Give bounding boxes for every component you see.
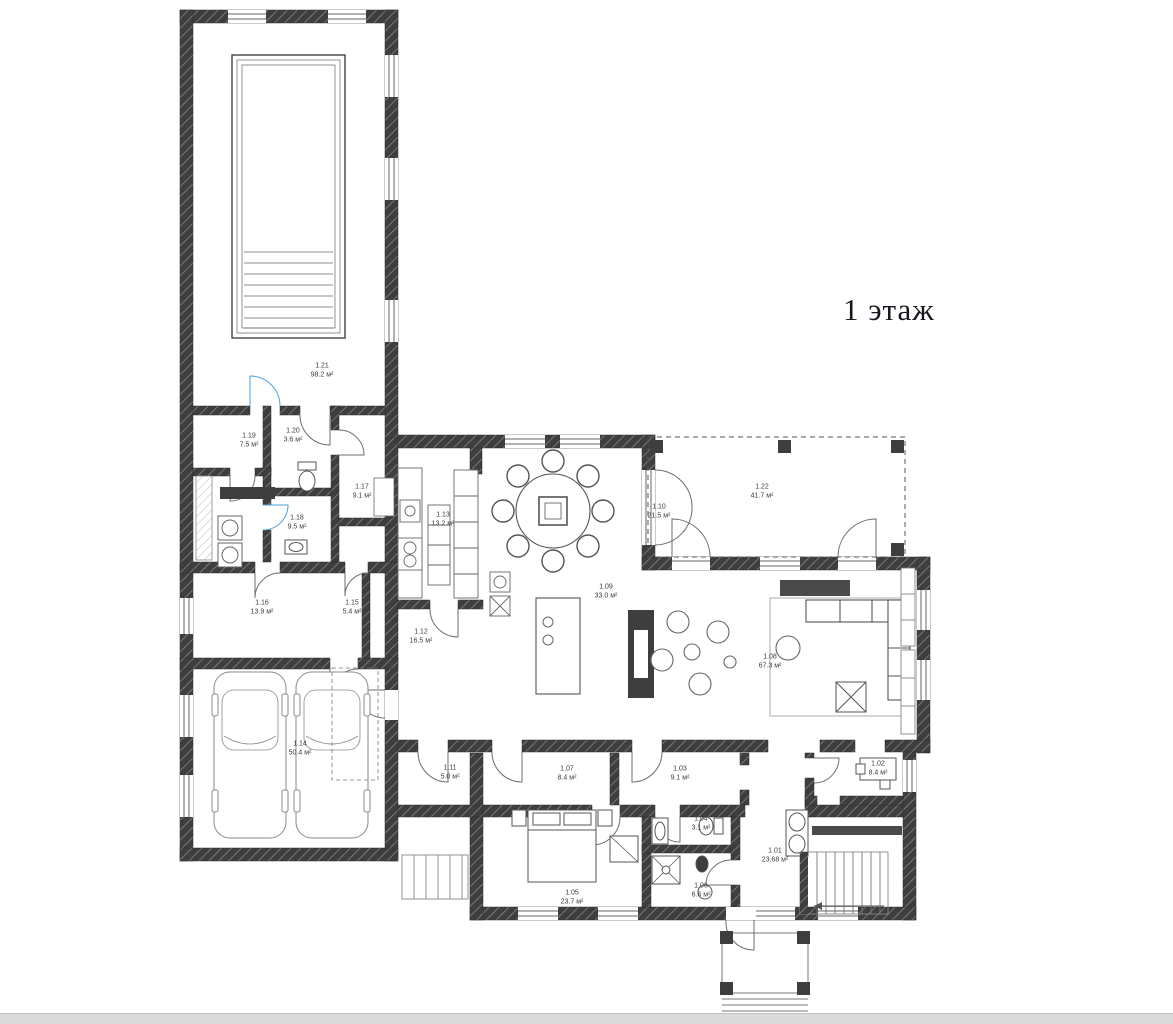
room-label-1-02: 1.028.4 м² — [869, 761, 888, 778]
window — [760, 557, 800, 570]
window — [917, 590, 930, 630]
room-label-1-01: 1.0123.68 м² — [762, 848, 789, 865]
wall-segment — [263, 468, 271, 505]
room-area: 9.1 м² — [353, 492, 372, 501]
porch-column — [797, 982, 810, 995]
room-area: 67.3 м² — [759, 662, 782, 671]
room-area: 3.6 м² — [284, 436, 303, 445]
room-number: 1.15 — [343, 600, 362, 609]
wall-segment — [470, 753, 483, 920]
room-area: 33.0 м² — [595, 592, 618, 601]
window — [598, 907, 638, 920]
room-label-1-03: 1.039.1 м² — [671, 766, 690, 783]
living-room-fixtures — [770, 568, 915, 734]
footer-strip — [0, 1013, 1173, 1024]
wall-segment — [522, 740, 632, 752]
wall-segment — [840, 796, 903, 805]
shower — [652, 856, 680, 884]
door-arc — [339, 430, 364, 455]
door-arc — [814, 758, 839, 783]
wall-segment — [731, 885, 740, 907]
room-label-1-13: 1.1313.2 м² — [432, 512, 455, 529]
door-gap — [726, 907, 756, 920]
hall-fixtures — [536, 598, 736, 698]
wall-segment — [662, 740, 768, 752]
stairs — [800, 852, 888, 914]
room-number: 1.03 — [671, 766, 690, 775]
room-number: 1.05 — [561, 890, 584, 899]
counter — [220, 487, 275, 499]
wall-segment — [263, 530, 271, 562]
wall-segment — [805, 805, 903, 817]
room-number: 1.14 — [289, 741, 312, 750]
room-area: 8.4 м² — [558, 774, 577, 783]
window — [228, 10, 266, 23]
room-label-1-04: 1.043.1 м² — [692, 816, 711, 833]
room-number: 1.19 — [240, 433, 259, 442]
window — [180, 598, 193, 634]
window — [385, 300, 398, 342]
window — [385, 158, 398, 200]
room-label-1-20: 1.203.6 м² — [284, 428, 303, 445]
toilet-dark — [696, 856, 708, 872]
room-label-1-12: 1.1216.5 м² — [410, 629, 433, 646]
appliance — [490, 572, 510, 592]
dining-set — [492, 450, 614, 572]
washing-machine — [218, 543, 242, 567]
window — [328, 10, 366, 23]
room-area: 3.1 м² — [692, 824, 711, 833]
wall-segment — [610, 753, 619, 805]
porch-column — [720, 982, 733, 995]
wall-segment — [180, 658, 330, 669]
toilet — [298, 462, 316, 491]
wall-segment — [339, 518, 398, 526]
room-area: 98.2 м² — [311, 371, 334, 380]
room-area: 16.5 м² — [410, 637, 433, 646]
window — [903, 760, 916, 792]
wall-segment — [331, 455, 339, 562]
washing-machine — [218, 516, 242, 540]
room-area: 5.4 м² — [343, 608, 362, 617]
room-label-1-15: 1.155.4 м² — [343, 600, 362, 617]
window — [560, 435, 600, 448]
room-area: 13.2 м² — [432, 520, 455, 529]
room-number: 1.07 — [558, 766, 577, 775]
room-label-1-14: 1.1450.4 м² — [289, 741, 312, 758]
wall-segment — [917, 557, 930, 753]
room-area: 41.7 м² — [751, 492, 774, 501]
wall-segment — [358, 658, 398, 669]
door-arc — [672, 519, 710, 557]
media-box — [836, 682, 866, 712]
terrace — [648, 437, 905, 557]
wall-segment — [448, 740, 492, 752]
wall-segment — [180, 848, 398, 861]
wall-segment — [642, 817, 651, 907]
room-label-1-19: 1.197.5 м² — [240, 433, 259, 450]
door-arc — [263, 505, 288, 530]
hob — [398, 538, 422, 570]
terrace-column — [778, 440, 791, 453]
pool — [232, 55, 345, 338]
room-number: 1.06 — [692, 883, 711, 892]
sink — [285, 540, 307, 554]
room-number: 1.08 — [759, 654, 782, 663]
floor-plan-drawing — [0, 0, 1173, 1024]
wall-segment — [731, 817, 740, 860]
window — [818, 907, 858, 920]
porch-column — [797, 931, 810, 944]
shelving — [901, 568, 915, 734]
room-number: 1.12 — [410, 629, 433, 638]
wall-segment — [642, 845, 731, 853]
floor-title: 1 этаж — [843, 292, 935, 328]
wall-segment — [805, 753, 814, 758]
room-area: 13.9 м² — [251, 608, 274, 617]
room-number: 1.18 — [288, 515, 307, 524]
radiator-bench — [812, 826, 902, 835]
room-number: 1.11 — [441, 765, 460, 774]
wall-segment — [362, 573, 370, 658]
room-number: 1.09 — [595, 584, 618, 593]
room-label-1-17: 1.179.1 м² — [353, 484, 372, 501]
room-area: 21.5 м² — [648, 512, 671, 521]
entry-hall-fixtures — [786, 758, 902, 914]
window — [385, 55, 398, 97]
wall-segment — [368, 562, 398, 573]
room-area: 23.68 м² — [762, 856, 789, 865]
room-label-1-08: 1.0867.3 м² — [759, 654, 782, 671]
room-label-1-18: 1.189.5 м² — [288, 515, 307, 532]
room-label-1-11: 1.115.0 м² — [441, 765, 460, 782]
room-area: 9.1 м² — [671, 774, 690, 783]
sideboard — [780, 580, 850, 596]
room-area: 23.7 м² — [561, 898, 584, 907]
room-area: 6.6 м² — [692, 891, 711, 900]
room-area: 50.4 м² — [289, 749, 312, 758]
pillow — [564, 813, 591, 825]
glass-door — [672, 557, 710, 570]
wall-segment — [193, 468, 230, 476]
wall-segment — [280, 406, 300, 415]
terrace-column — [891, 543, 904, 556]
porch-column — [720, 931, 733, 944]
door-gap — [385, 690, 398, 720]
room-number: 1.20 — [284, 428, 303, 437]
wall-segment — [280, 562, 345, 573]
window — [505, 435, 545, 448]
kitchen-counter — [398, 468, 422, 598]
nightstand — [598, 810, 612, 826]
room-number: 1.16 — [251, 600, 274, 609]
door-arc — [300, 415, 330, 445]
door-arc — [255, 573, 280, 598]
door-arc — [838, 519, 876, 557]
glass-door — [838, 557, 876, 570]
lounge-chairs — [651, 611, 736, 695]
bench — [786, 810, 808, 856]
room-area: 5.0 м² — [441, 773, 460, 782]
shaft — [196, 476, 212, 560]
sink — [652, 818, 668, 844]
wall-segment — [398, 740, 418, 752]
room-label-1-09: 1.0933.0 м² — [595, 584, 618, 601]
wall-segment — [193, 406, 250, 415]
nightstand — [512, 810, 526, 826]
room-label-1-07: 1.078.4 м² — [558, 766, 577, 783]
room-label-1-21: 1.2198.2 м² — [311, 363, 334, 380]
wall-segment — [331, 406, 339, 430]
window — [518, 907, 558, 920]
door-arc — [632, 752, 662, 782]
pool-stairs — [244, 252, 333, 328]
room-number: 1.01 — [762, 848, 789, 857]
room-area: 7.5 м² — [240, 441, 259, 450]
wall-segment — [885, 740, 930, 752]
room-label-1-10: 1.1021.5 м² — [648, 504, 671, 521]
floor-plan-page: 1 этаж 1.0123.68 м² 1.028.4 м² 1.039.1 м… — [0, 0, 1173, 1024]
wall-segment — [820, 740, 855, 752]
room-label-1-05: 1.0523.7 м² — [561, 890, 584, 907]
kitchen-sink — [400, 500, 420, 522]
room-area: 8.4 м² — [869, 769, 888, 778]
plant — [724, 656, 736, 668]
wall-segment — [458, 600, 483, 609]
room-number: 1.17 — [353, 484, 372, 493]
terrace-column — [650, 440, 663, 453]
closet-shelf — [374, 478, 394, 516]
wall-segment — [398, 600, 430, 609]
room-area: 9.5 м² — [288, 523, 307, 532]
door-arc — [706, 860, 731, 885]
pillow — [533, 813, 560, 825]
fireplace — [628, 610, 654, 698]
wall-segment — [740, 790, 749, 805]
room-number: 1.22 — [751, 484, 774, 493]
car — [212, 672, 288, 838]
door-arc — [655, 470, 692, 507]
wall-segment — [263, 406, 271, 472]
wall-segment — [805, 796, 817, 805]
window — [917, 660, 930, 700]
room-number: 1.04 — [692, 816, 711, 825]
window — [755, 907, 795, 920]
side-table — [684, 644, 700, 660]
window — [180, 695, 193, 737]
room-label-1-16: 1.1613.9 м² — [251, 600, 274, 617]
bathroom-fixtures — [652, 817, 723, 899]
entrance-porch — [720, 931, 810, 1011]
wall-segment — [740, 753, 749, 765]
wall-segment — [620, 805, 655, 817]
room-number: 1.02 — [869, 761, 888, 770]
exterior-steps — [402, 855, 468, 899]
kitchen-cabinets — [454, 470, 478, 598]
bedroom-fixtures — [512, 810, 638, 882]
appliance — [490, 596, 510, 616]
door-arc — [430, 609, 458, 637]
wall-segment — [398, 805, 483, 817]
room-label-1-06: 1.066.6 м² — [692, 883, 711, 900]
room-number: 1.21 — [311, 363, 334, 372]
room-number: 1.10 — [648, 504, 671, 513]
room-number: 1.13 — [432, 512, 455, 521]
room-label-1-22: 1.2241.7 м² — [751, 484, 774, 501]
window — [180, 775, 193, 817]
kitchen-fixtures — [398, 468, 510, 616]
door-arc — [492, 752, 522, 782]
terrace-column — [891, 440, 904, 453]
wall-segment — [680, 805, 745, 817]
island-unit — [536, 598, 580, 694]
door-arc — [250, 376, 280, 406]
